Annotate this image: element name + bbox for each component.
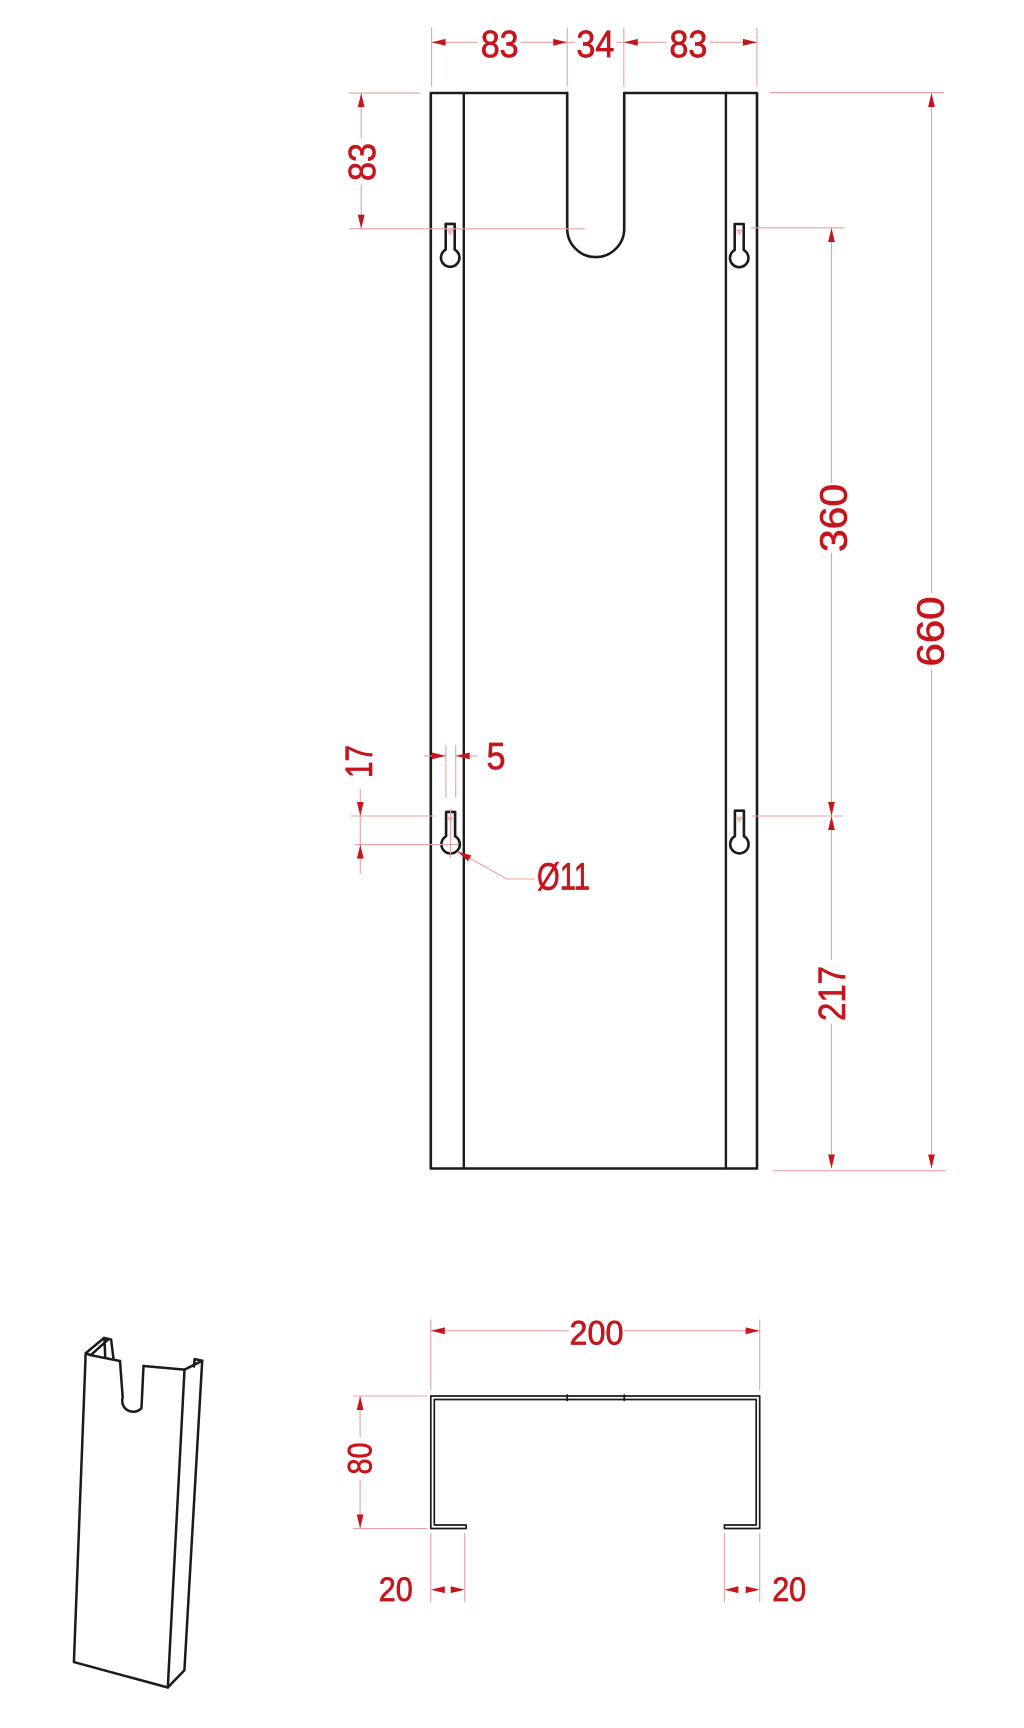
svg-text:34: 34 xyxy=(576,24,614,66)
svg-text:20: 20 xyxy=(379,1571,413,1609)
svg-text:5: 5 xyxy=(487,736,506,778)
svg-text:20: 20 xyxy=(772,1571,806,1609)
svg-text:80: 80 xyxy=(342,1443,380,1475)
svg-text:17: 17 xyxy=(339,745,381,778)
svg-text:83: 83 xyxy=(342,143,384,181)
svg-text:660: 660 xyxy=(910,597,952,667)
svg-text:Ø11: Ø11 xyxy=(537,857,590,899)
svg-text:217: 217 xyxy=(812,966,854,1021)
svg-text:83: 83 xyxy=(481,24,519,66)
svg-text:360: 360 xyxy=(814,484,856,552)
svg-text:83: 83 xyxy=(669,24,707,66)
svg-text:200: 200 xyxy=(570,1315,624,1353)
